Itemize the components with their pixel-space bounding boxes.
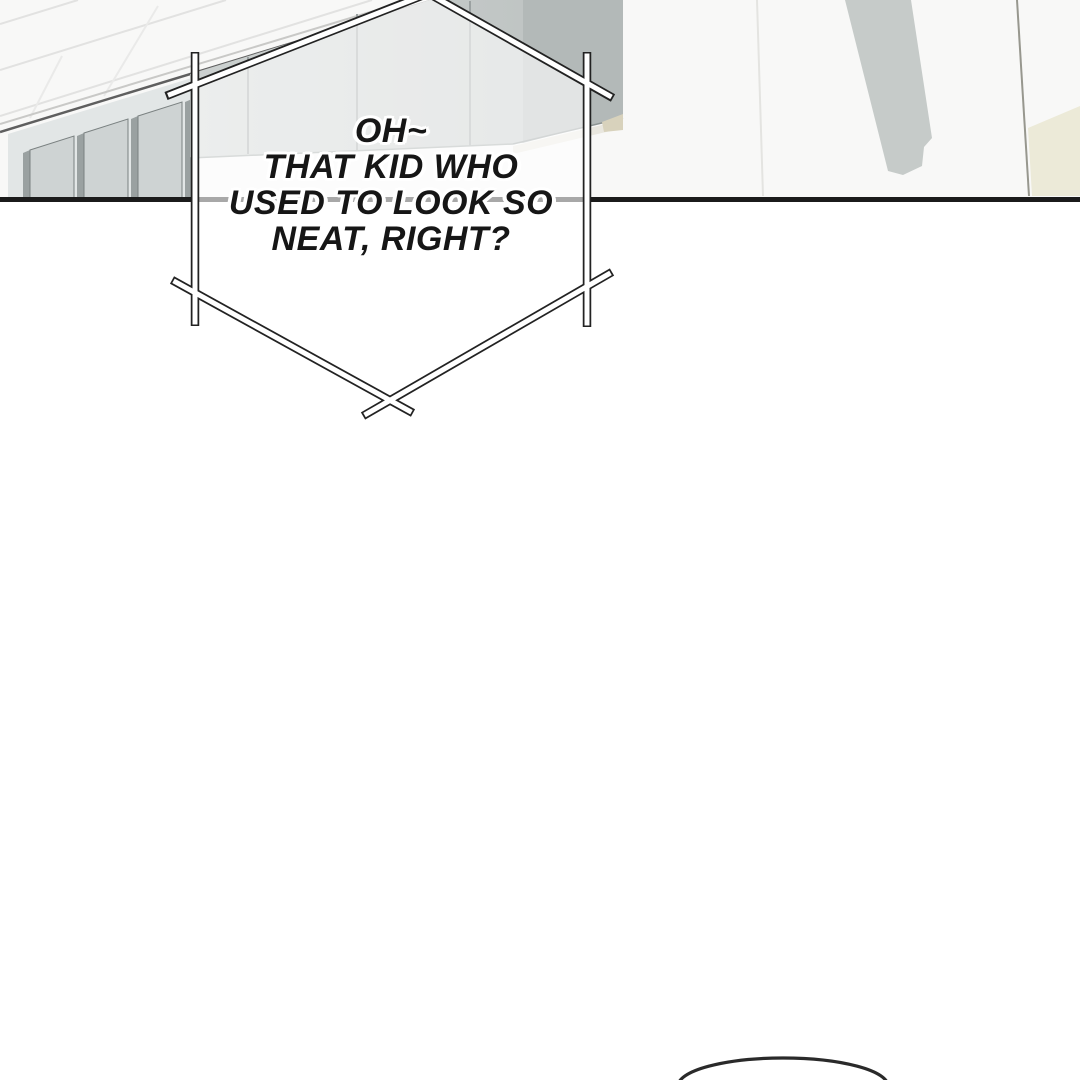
speech-line-1: OH~ [195,113,587,149]
speech-line-2: THAT KID WHO [195,149,587,185]
speech-line-3: USED TO LOOK SO [195,185,587,221]
speech-line-4: NEAT, RIGHT? [195,221,587,257]
comic-panel: OH~ THAT KID WHO USED TO LOOK SO NEAT, R… [0,0,1080,1080]
next-bubble-arc [678,1058,888,1080]
speech-bubble-text: OH~ THAT KID WHO USED TO LOOK SO NEAT, R… [195,113,587,257]
